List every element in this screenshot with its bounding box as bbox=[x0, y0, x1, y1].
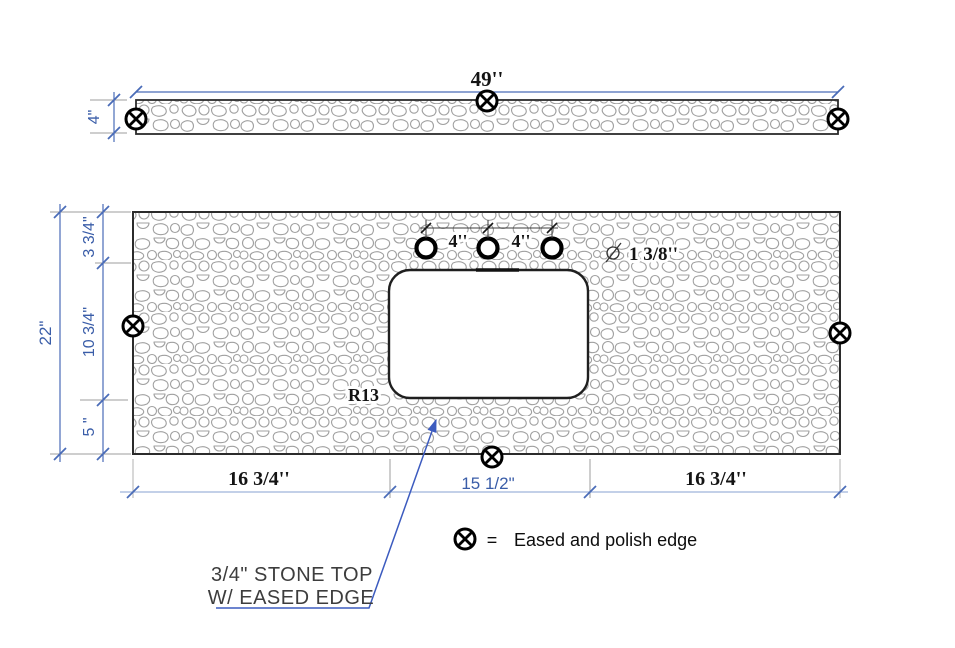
hole-diameter-label: 1 3/8'' bbox=[629, 244, 678, 265]
eased-edge-legend-symbol bbox=[455, 529, 475, 549]
note-line2: W/ EASED EDGE bbox=[208, 587, 375, 609]
legend-label: Eased and polish edge bbox=[514, 530, 697, 550]
countertop-plan-view: R13 4'' 4'' 1 3/8'' bbox=[123, 212, 850, 467]
eased-edge-marker-backsplash-right bbox=[828, 109, 848, 129]
faucet-hole-left bbox=[417, 239, 436, 258]
eased-edge-marker-backsplash-left bbox=[126, 109, 146, 129]
bottom-left-label: 16 3/4'' bbox=[228, 468, 290, 490]
sink-radius-label: R13 bbox=[348, 385, 379, 405]
left-segment-middle-label: 10 3/4" bbox=[81, 307, 98, 357]
left-segment-top-label: 3 3/4" bbox=[81, 216, 98, 257]
eased-edge-marker-plan-right bbox=[830, 323, 850, 343]
faucet-spacing-right-label: 4'' bbox=[511, 231, 530, 251]
bottom-right-label: 16 3/4'' bbox=[685, 468, 747, 490]
drawing-canvas: 49'' 4" R13 bbox=[0, 0, 955, 648]
left-segment-bottom-label: 5 " bbox=[81, 417, 98, 436]
depth-label: 22" bbox=[36, 321, 55, 346]
faucet-spacing-left-label: 4'' bbox=[448, 231, 467, 251]
note-line1: 3/4" STONE TOP bbox=[211, 564, 373, 586]
depth-dimension-line bbox=[54, 204, 66, 462]
left-dimensions: 22" 3 3/4" 10 3/4" 5 " bbox=[36, 204, 131, 462]
backsplash-height-label: 4" bbox=[86, 110, 103, 125]
eased-edge-marker-plan-left bbox=[123, 316, 143, 336]
sink-cutout bbox=[389, 270, 588, 398]
faucet-hole-right bbox=[543, 239, 562, 258]
countertop-shop-drawing: 49'' 4" R13 bbox=[0, 0, 955, 648]
left-segment-dimension-line bbox=[97, 204, 109, 462]
eased-edge-marker-plan-bottom bbox=[482, 447, 502, 467]
bottom-middle-label: 15 1/2" bbox=[461, 474, 514, 493]
faucet-hole-center bbox=[479, 239, 498, 258]
backsplash-view: 49'' 4" bbox=[86, 67, 848, 142]
edge-legend: = Eased and polish edge bbox=[455, 529, 697, 550]
eased-edge-marker-backsplash-top bbox=[477, 91, 497, 111]
backsplash-width-label: 49'' bbox=[471, 67, 504, 91]
legend-equals: = bbox=[487, 530, 498, 550]
